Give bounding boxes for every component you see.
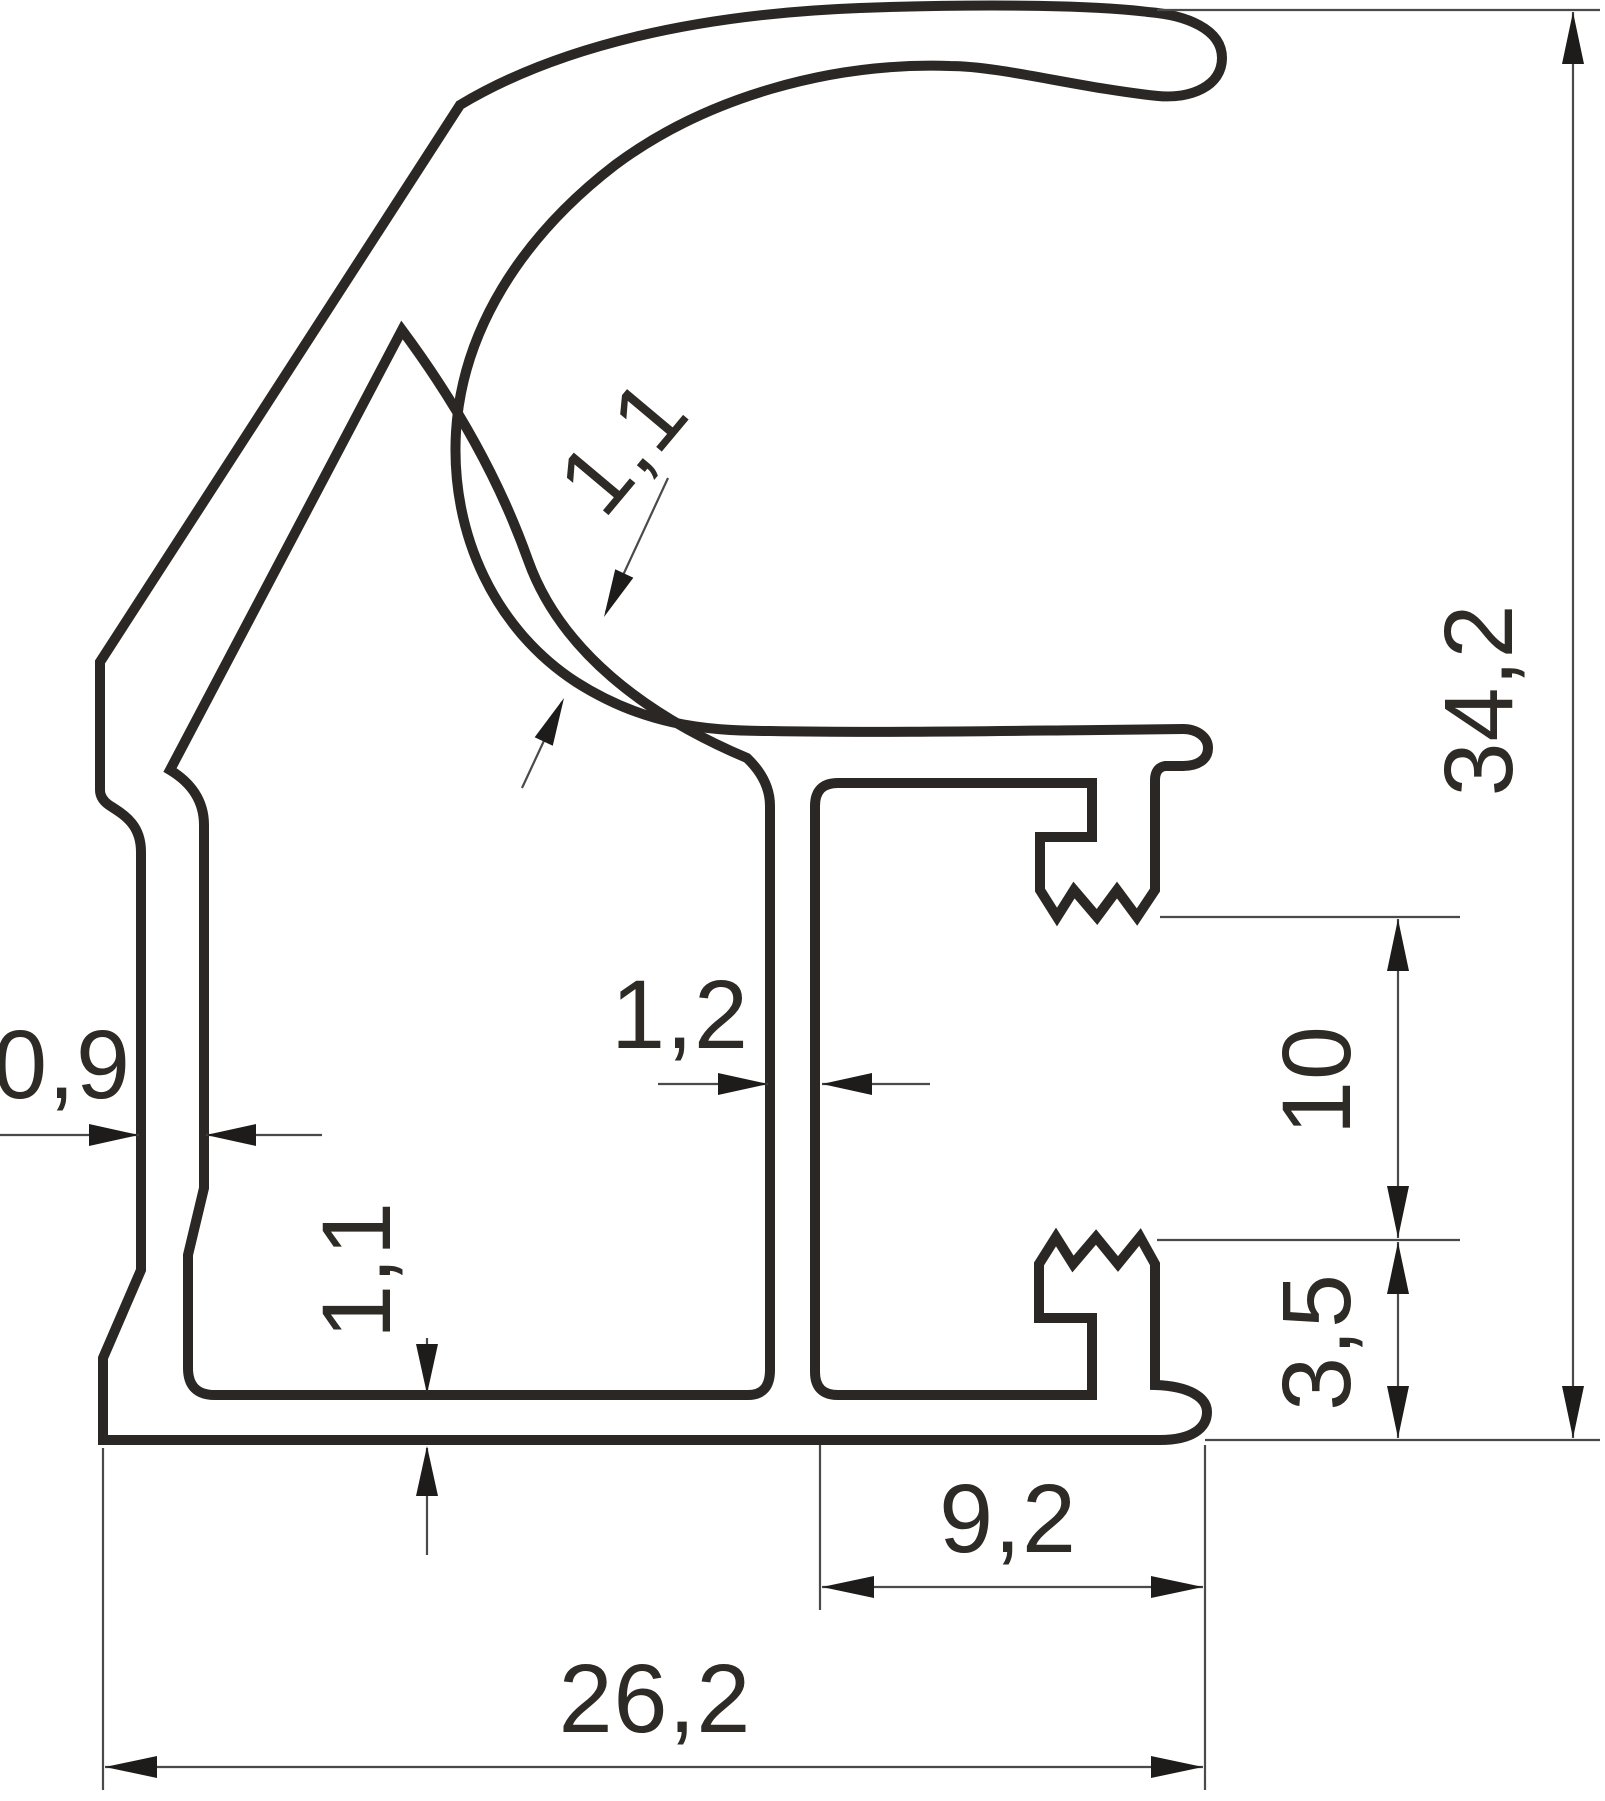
dim-hook-to-bottom: 3,5 [1262, 1242, 1409, 1438]
profile-geometry [100, 5, 1222, 1440]
dim-ring-wall-arrow-upper [595, 569, 633, 621]
profile-outline [100, 5, 1222, 1440]
dim-bottom-wall: 1,1 [302, 1201, 438, 1555]
dim-overall-width-arrow-right [1151, 1756, 1203, 1778]
profile-chamber-outline [170, 330, 770, 1395]
dim-hook-gap: 10 [1157, 917, 1460, 1240]
technical-drawing-page: 34,2 10 3,5 9,2 26,2 0,9 [0, 0, 1605, 1801]
profile-drawing-canvas: 34,2 10 3,5 9,2 26,2 0,9 [0, 0, 1605, 1801]
dim-hook-to-bottom-arrow-top [1387, 1242, 1409, 1294]
dim-left-wall-label: 0,9 [0, 1010, 131, 1119]
dim-center-wall-label: 1,2 [611, 960, 749, 1069]
dim-left-wall: 0,9 [0, 1010, 322, 1146]
dim-overall-width-label: 26,2 [559, 1644, 752, 1753]
dim-center-wall-arrow-right [822, 1073, 872, 1095]
dim-hook-gap-arrow-top [1387, 919, 1409, 971]
dim-hook-gap-label: 10 [1262, 1025, 1371, 1135]
dim-hook-to-bottom-arrow-bottom [1387, 1386, 1409, 1438]
dim-ring-wall-arrow-lower [535, 694, 573, 746]
dim-ring-wall-label: 1,1 [536, 359, 708, 535]
dim-left-wall-arrow-left [89, 1124, 139, 1146]
dim-bottom-wall-arrow-down [416, 1344, 438, 1394]
dim-channel-width-arrow-left [822, 1576, 874, 1598]
dim-left-wall-arrow-right [206, 1124, 256, 1146]
dim-overall-height-arrow-top [1562, 12, 1584, 64]
dim-overall-height-arrow-bottom [1562, 1386, 1584, 1438]
dim-channel-width-label: 9,2 [939, 1464, 1077, 1573]
dim-channel-width: 9,2 [820, 1445, 1205, 1790]
dim-overall-height-label: 34,2 [1424, 604, 1533, 797]
dim-hook-gap-arrow-bottom [1387, 1186, 1409, 1238]
dim-hook-to-bottom-label: 3,5 [1262, 1273, 1371, 1411]
dim-bottom-wall-label: 1,1 [302, 1201, 411, 1339]
dim-channel-width-arrow-right [1151, 1576, 1203, 1598]
dim-overall-width-arrow-left [105, 1756, 157, 1778]
dim-overall-height: 34,2 [1157, 10, 1600, 1440]
dim-bottom-wall-arrow-up [416, 1446, 438, 1496]
dim-center-wall-arrow-left [718, 1073, 768, 1095]
